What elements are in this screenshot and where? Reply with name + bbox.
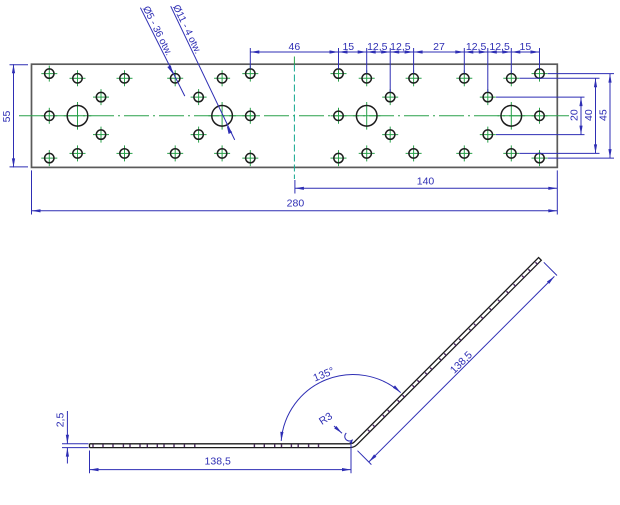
- svg-text:20: 20: [569, 109, 581, 121]
- svg-text:138,5: 138,5: [448, 349, 475, 376]
- svg-text:40: 40: [583, 109, 595, 121]
- svg-text:46: 46: [289, 41, 301, 53]
- svg-text:Ø11 - 4 otw.: Ø11 - 4 otw.: [170, 3, 203, 56]
- svg-text:2,5: 2,5: [55, 413, 67, 428]
- svg-text:12,5: 12,5: [466, 41, 487, 53]
- svg-text:12,5: 12,5: [489, 41, 510, 53]
- svg-text:55: 55: [1, 111, 13, 123]
- svg-text:12,5: 12,5: [367, 41, 388, 53]
- svg-text:140: 140: [417, 176, 435, 188]
- svg-text:15: 15: [520, 41, 532, 53]
- svg-text:15: 15: [342, 41, 354, 53]
- svg-text:280: 280: [287, 198, 305, 210]
- svg-text:R3: R3: [317, 410, 335, 427]
- svg-text:27: 27: [433, 41, 445, 53]
- svg-text:12,5: 12,5: [390, 41, 411, 53]
- svg-text:138,5: 138,5: [205, 455, 231, 467]
- svg-text:45: 45: [598, 109, 610, 121]
- svg-text:135°: 135°: [312, 365, 337, 384]
- svg-text:Ø5 - 36 otw.: Ø5 - 36 otw.: [140, 5, 174, 58]
